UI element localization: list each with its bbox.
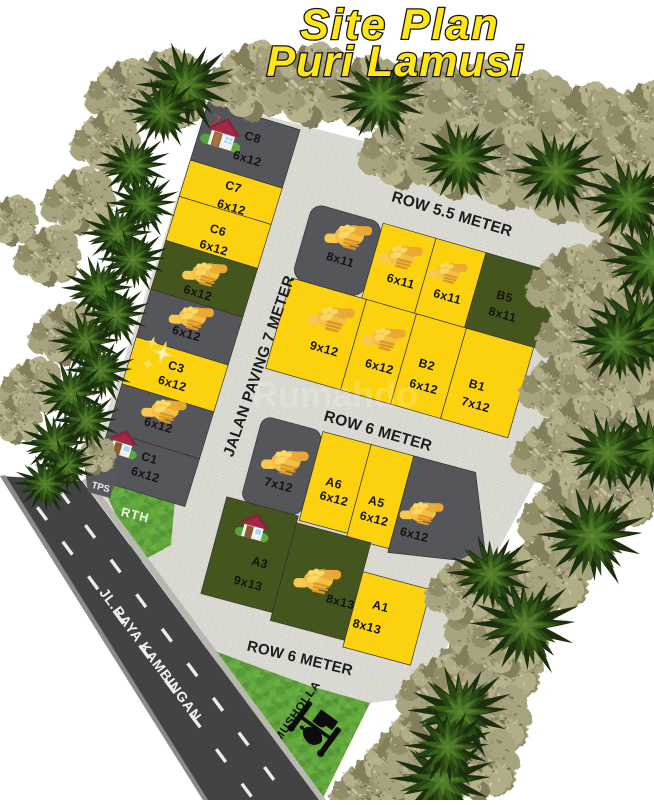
svg-text:Rumahdo: Rumahdo [252,374,418,415]
svg-text:Puri Lamusi: Puri Lamusi [266,38,523,86]
